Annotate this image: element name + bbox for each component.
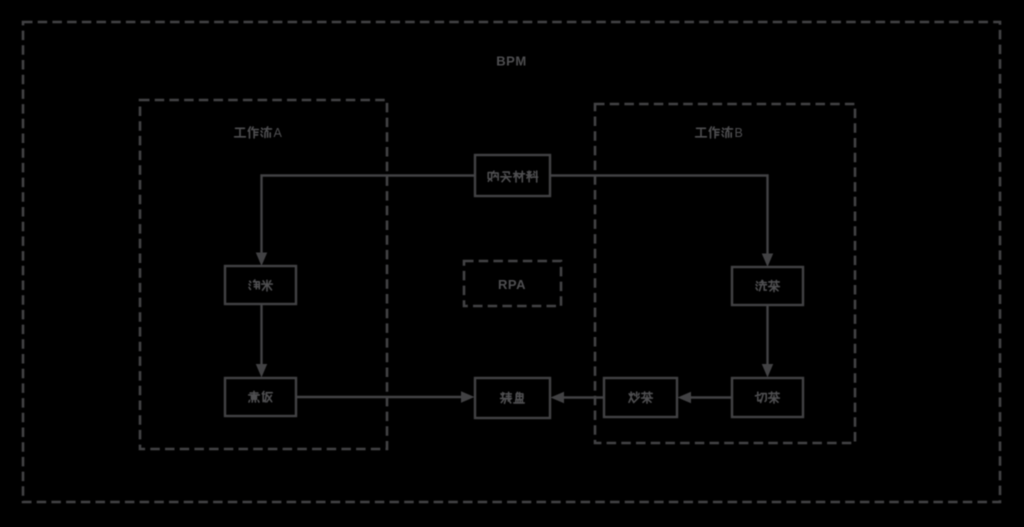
svg-text:RPA: RPA bbox=[498, 277, 526, 292]
svg-text:BPM: BPM bbox=[496, 54, 526, 69]
svg-text:B: B bbox=[735, 126, 744, 140]
svg-text:A: A bbox=[274, 126, 283, 140]
